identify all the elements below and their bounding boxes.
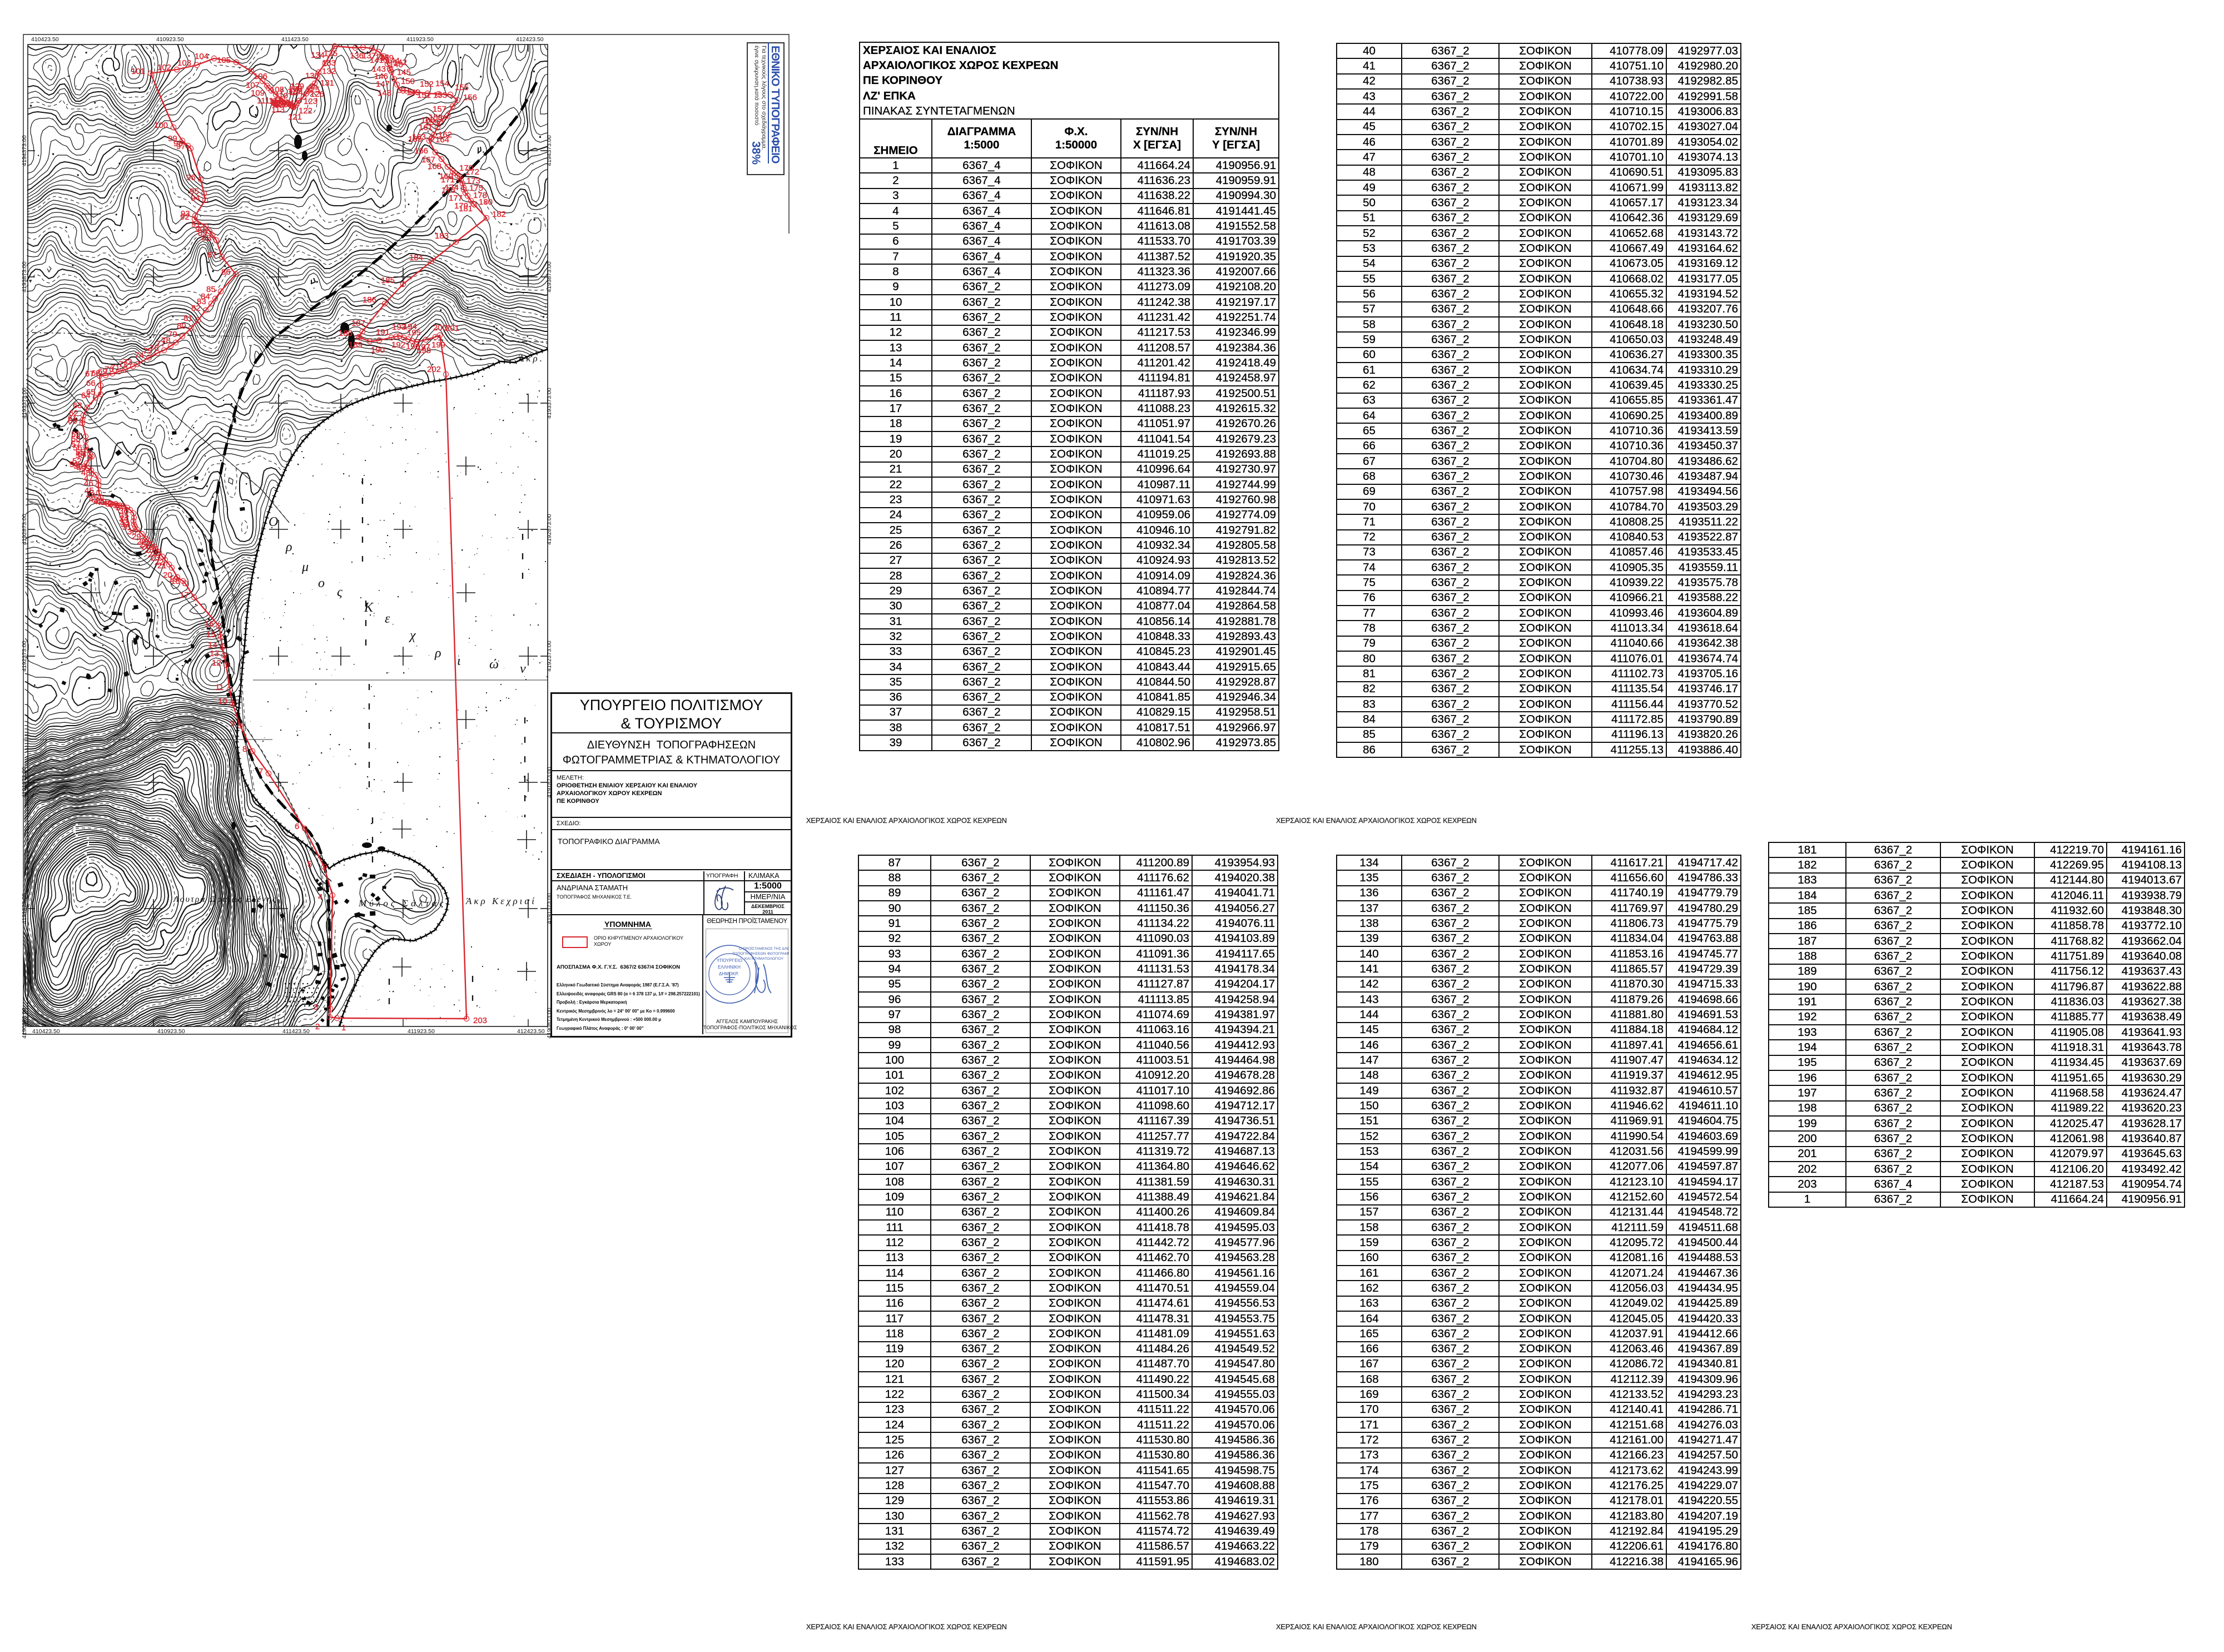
svg-text:4192373.00: 4192373.00 (546, 641, 553, 672)
svg-text:161: 161 (419, 123, 433, 132)
svg-text:104: 104 (195, 52, 209, 61)
svg-text:410923.50: 410923.50 (156, 36, 184, 43)
svg-text:2: 2 (315, 1022, 320, 1031)
svg-text:411423.50: 411423.50 (281, 36, 309, 43)
svg-text:Ο: Ο (269, 515, 278, 529)
svg-text:ι: ι (457, 654, 461, 668)
svg-text:410923.50: 410923.50 (157, 1028, 185, 1035)
svg-text:4: 4 (318, 892, 322, 902)
svg-text:195: 195 (407, 328, 421, 338)
svg-text:91: 91 (191, 220, 201, 229)
svg-text:411423.50: 411423.50 (282, 1028, 310, 1035)
svg-text:66: 66 (86, 379, 96, 388)
svg-text:Μύλος Σάλτας: Μύλος Σάλτας (358, 898, 446, 909)
svg-text:15: 15 (206, 630, 216, 639)
svg-text:192: 192 (391, 340, 405, 350)
svg-text:ΚΑΙ ΚΤΗΜΑΤΟΛΟΓΙΟΥ: ΚΑΙ ΚΤΗΜΑΤΟΛΟΓΙΟΥ (744, 957, 784, 961)
svg-text:85: 85 (206, 285, 216, 294)
svg-text:Άκρ Κεχριαί: Άκρ Κεχριαί (465, 896, 537, 906)
svg-text:134: 134 (311, 51, 325, 60)
svg-text:8: 8 (242, 745, 247, 754)
svg-text:106: 106 (254, 72, 267, 81)
svg-text:152: 152 (420, 80, 434, 89)
svg-text:153: 153 (433, 91, 447, 100)
svg-text:7: 7 (259, 767, 263, 776)
svg-text:411923.50: 411923.50 (406, 36, 434, 43)
svg-text:181: 181 (459, 204, 473, 214)
svg-text:100: 100 (154, 121, 168, 130)
svg-text:9: 9 (230, 719, 235, 728)
svg-text:166: 166 (414, 146, 428, 156)
svg-text:202: 202 (427, 365, 441, 374)
svg-text:4193873.00: 4193873.00 (21, 261, 28, 292)
svg-text:Λουτρά Ωραίας Ελένης: Λουτρά Ωραίας Ελένης (172, 895, 277, 904)
svg-text:ΔΗΜΟΚΡ.: ΔΗΜΟΚΡ. (719, 971, 739, 976)
svg-text:105: 105 (217, 56, 231, 65)
svg-text:Κ: Κ (364, 601, 374, 615)
svg-text:ΤΟΠΟΓΡΑΦΗΣΕΩΝ ΦΩΤΟΓΡΑΜΜΕΤΡΙΑΣ: ΤΟΠΟΓΡΑΦΗΣΕΩΝ ΦΩΤΟΓΡΑΜΜΕΤΡΙΑΣ (732, 952, 789, 956)
svg-text:4194373.00: 4194373.00 (546, 135, 553, 166)
svg-text:155: 155 (455, 83, 469, 92)
svg-text:141: 141 (370, 56, 384, 65)
svg-text:13: 13 (210, 649, 219, 658)
svg-text:79: 79 (168, 330, 177, 339)
svg-text:99: 99 (168, 134, 177, 143)
svg-text:184: 184 (409, 253, 423, 262)
svg-text:183: 183 (435, 231, 449, 241)
svg-text:4190873.00: 4190873.00 (21, 1008, 28, 1039)
svg-text:ΥΠΟΥΡΓΕΙΟ: ΥΠΟΥΡΓΕΙΟ (717, 958, 742, 963)
svg-text:96: 96 (186, 173, 196, 182)
svg-text:101: 101 (131, 67, 145, 76)
svg-text:164: 164 (435, 135, 449, 145)
svg-text:4193873.00: 4193873.00 (546, 261, 553, 292)
svg-text:1: 1 (341, 1023, 346, 1033)
svg-text:10: 10 (218, 697, 227, 706)
svg-text:120: 120 (274, 100, 288, 110)
svg-text:12: 12 (212, 658, 221, 668)
svg-text:165: 165 (408, 135, 422, 144)
svg-text:4192873.00: 4192873.00 (21, 514, 28, 545)
svg-text:144: 144 (386, 56, 400, 66)
svg-text:412423.50: 412423.50 (516, 36, 544, 43)
svg-text:130: 130 (305, 71, 319, 81)
svg-text:186: 186 (363, 295, 376, 305)
svg-text:4192873.00: 4192873.00 (546, 514, 553, 545)
svg-text:135: 135 (324, 49, 337, 58)
svg-text:Άκρ.: Άκρ. (518, 353, 544, 364)
svg-text:188: 188 (339, 329, 353, 338)
svg-text:4193373.00: 4193373.00 (21, 388, 28, 419)
svg-text:187: 187 (351, 319, 365, 328)
svg-text:145: 145 (397, 68, 411, 77)
svg-text:Ο ΠΡΟΪΣΤΑΜΕΝΟΣ ΤΗΣ Δ/ΝΣΗΣ: Ο ΠΡΟΪΣΤΑΜΕΝΟΣ ΤΗΣ Δ/ΝΣΗΣ (739, 946, 789, 951)
svg-text:185: 185 (381, 276, 395, 285)
svg-text:81: 81 (183, 314, 193, 323)
svg-text:111: 111 (257, 96, 270, 106)
svg-text:410423.50: 410423.50 (32, 1028, 60, 1035)
svg-text:63: 63 (73, 401, 82, 410)
svg-text:4193373.00: 4193373.00 (546, 388, 553, 419)
svg-text:168: 168 (428, 162, 441, 171)
svg-text:203: 203 (473, 1016, 487, 1025)
svg-text:112: 112 (286, 98, 300, 108)
svg-text:172: 172 (465, 167, 479, 177)
svg-text:180: 180 (479, 197, 493, 207)
svg-text:191: 191 (376, 328, 390, 337)
svg-text:156: 156 (463, 93, 477, 102)
svg-text:20: 20 (163, 570, 172, 580)
svg-text:154: 154 (435, 79, 449, 88)
svg-text:11: 11 (215, 683, 224, 692)
svg-text:201: 201 (445, 324, 459, 333)
svg-text:129: 129 (290, 82, 304, 91)
svg-text:χ: χ (409, 628, 416, 643)
svg-text:ρ: ρ (434, 646, 441, 661)
svg-text:199: 199 (431, 340, 445, 350)
svg-text:198: 198 (417, 346, 431, 355)
svg-text:5: 5 (307, 860, 312, 869)
svg-text:86: 86 (221, 267, 231, 277)
svg-text:95: 95 (190, 187, 199, 196)
svg-text:189: 189 (349, 340, 363, 350)
svg-text:ρ: ρ (285, 540, 292, 554)
svg-text:411923.50: 411923.50 (408, 1028, 435, 1035)
svg-text:412423.50: 412423.50 (517, 1028, 545, 1035)
svg-text:ώ: ώ (489, 657, 499, 672)
svg-text:190: 190 (371, 345, 385, 355)
svg-text:410423.50: 410423.50 (31, 36, 59, 43)
svg-text:148: 148 (378, 88, 391, 98)
svg-text:182: 182 (492, 210, 506, 219)
svg-text:6: 6 (295, 822, 299, 831)
svg-text:150: 150 (401, 77, 415, 86)
svg-text:103: 103 (177, 58, 191, 68)
svg-text:65: 65 (86, 388, 96, 397)
svg-text:151: 151 (417, 91, 431, 100)
svg-text:4192373.00: 4192373.00 (21, 641, 28, 672)
svg-text:ν: ν (520, 662, 526, 676)
svg-text:ς: ς (337, 585, 342, 599)
svg-text:102: 102 (157, 63, 171, 72)
svg-text:16: 16 (205, 619, 214, 629)
svg-text:ο: ο (318, 576, 325, 591)
svg-text:3: 3 (314, 1003, 318, 1012)
svg-text:131: 131 (320, 78, 334, 88)
svg-text:17: 17 (180, 591, 189, 600)
svg-text:126: 126 (310, 90, 324, 99)
svg-text:μ: μ (301, 560, 309, 574)
svg-text:4191373.00: 4191373.00 (21, 893, 28, 924)
svg-text:122: 122 (299, 106, 312, 116)
svg-text:87: 87 (207, 250, 217, 260)
svg-text:14: 14 (208, 641, 217, 650)
svg-text:59: 59 (71, 430, 81, 439)
svg-text:93: 93 (181, 209, 190, 219)
svg-text:73: 73 (123, 358, 132, 367)
svg-text:4194373.00: 4194373.00 (21, 135, 28, 166)
svg-text:ε: ε (385, 612, 390, 626)
svg-text:ΕΛΛΗΝΙΚΗ: ΕΛΛΗΝΙΚΗ (718, 965, 741, 970)
svg-text:132: 132 (322, 67, 336, 76)
svg-text:4191873.00: 4191873.00 (21, 767, 28, 798)
svg-text:147: 147 (376, 80, 390, 89)
